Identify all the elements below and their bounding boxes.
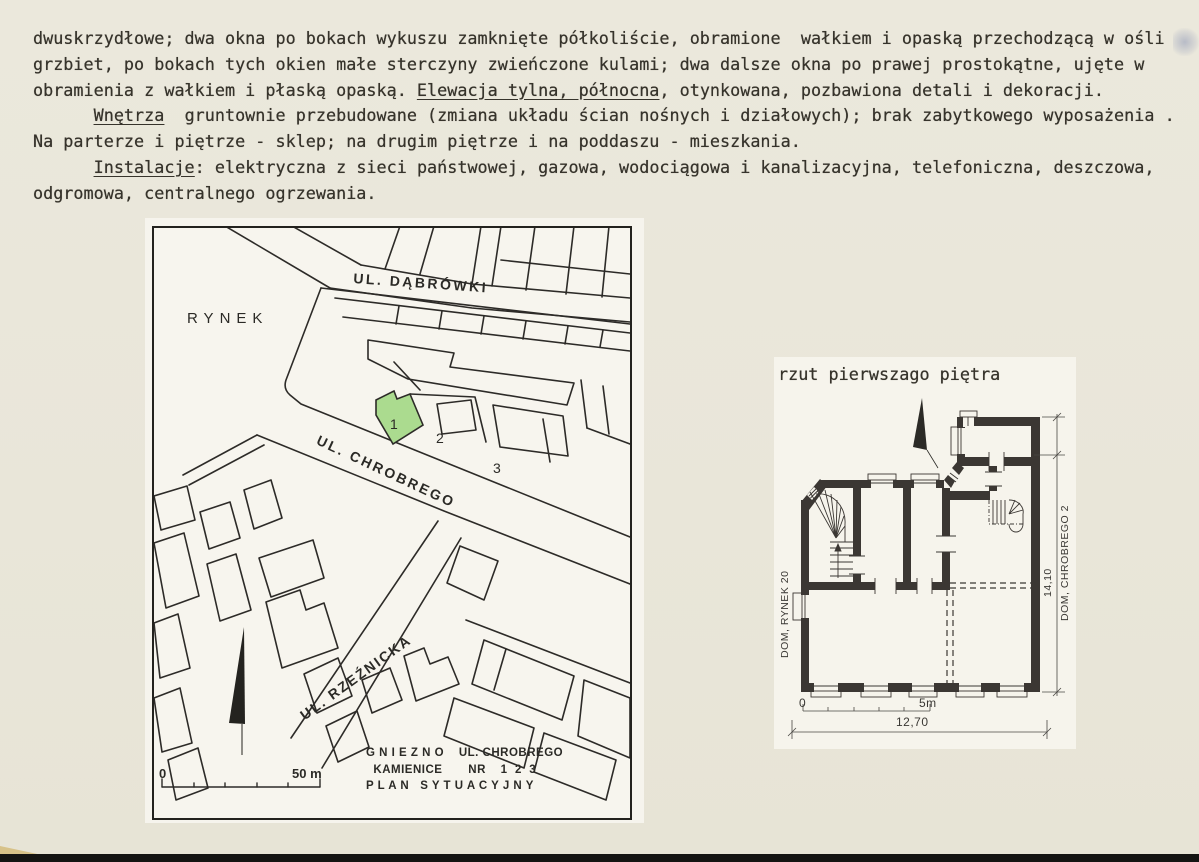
document-text: dwuskrzydłowe; dwa okna po bokach wykusz… xyxy=(33,26,1173,207)
map-caption-line: KAMIENICE NR 1 2 3 xyxy=(366,762,563,779)
map-scale-fifty: 50 m xyxy=(292,766,322,781)
plan-winder-stair xyxy=(989,500,1023,532)
text-line: dwuskrzydłowe; dwa okna po bokach wykusz… xyxy=(33,26,1173,52)
scanned-document-page: dwuskrzydłowe; dwa okna po bokach wykusz… xyxy=(0,0,1199,862)
block-outline xyxy=(285,288,630,537)
stamp-mark xyxy=(1173,28,1199,56)
plan-windows xyxy=(801,416,1024,693)
map-caption-line: G N I E Z N O UL. CHROBREGO xyxy=(366,745,563,762)
text-line: odgromowa, centralnego ogrzewania. xyxy=(33,181,1173,207)
north-arrow-icon xyxy=(913,398,938,468)
site-map-figure: RYNEK UL. DĄBRÓWKI UL. CHROBREGO UL. RZE… xyxy=(152,226,632,820)
plan-label-dom-rynek: DOM, RYNEK 20 xyxy=(779,571,791,658)
plan-label-dom-chrobrego: DOM, CHROBREGO 2 xyxy=(1059,505,1071,621)
plan-door-ticks xyxy=(849,452,1004,594)
street-edge xyxy=(292,228,361,265)
map-caption-line: P L A N S Y T U A C Y J N Y xyxy=(366,778,563,795)
map-label-parcel-1: 1 xyxy=(390,416,398,432)
text-line: Na parterze i piętrze - sklep; na drugim… xyxy=(33,129,1173,155)
plan-scale-five: 5m xyxy=(919,696,937,710)
map-label-parcel-3: 3 xyxy=(493,460,501,476)
floor-plan-figure: DOM, RYNEK 20 14,10 DOM, CHROBREGO 2 12,… xyxy=(776,390,1073,750)
floor-plan-caption: rzut pierwszago piętra xyxy=(778,364,1000,384)
map-scale-zero: 0 xyxy=(159,766,166,781)
plan-dimension-width: 12,70 xyxy=(896,715,929,729)
text-line: Wnętrza gruntownie przebudowane (zmiana … xyxy=(33,103,1173,129)
map-label-rynek: RYNEK xyxy=(187,310,268,327)
text-line: grzbiet, po bokach tych okien małe sterc… xyxy=(33,52,1173,78)
highlighted-parcel xyxy=(376,391,423,444)
plan-dimension-height: 14,10 xyxy=(1042,568,1054,597)
plan-dashed-walls xyxy=(947,583,1031,683)
map-caption: G N I E Z N O UL. CHROBREGO KAMIENICE NR… xyxy=(366,745,563,795)
plan-scale-zero: 0 xyxy=(799,696,806,710)
north-arrow-icon xyxy=(229,627,245,755)
plan-main-staircase xyxy=(810,489,853,578)
scan-edge-strip xyxy=(0,854,1199,862)
street-edge xyxy=(225,228,330,288)
text-line: Instalacje: elektryczna z sieci państwow… xyxy=(33,155,1173,181)
street-edge xyxy=(257,435,630,584)
text-line: obramienia z wałkiem i płaską opaską. El… xyxy=(33,78,1173,104)
map-label-parcel-2: 2 xyxy=(436,430,444,446)
